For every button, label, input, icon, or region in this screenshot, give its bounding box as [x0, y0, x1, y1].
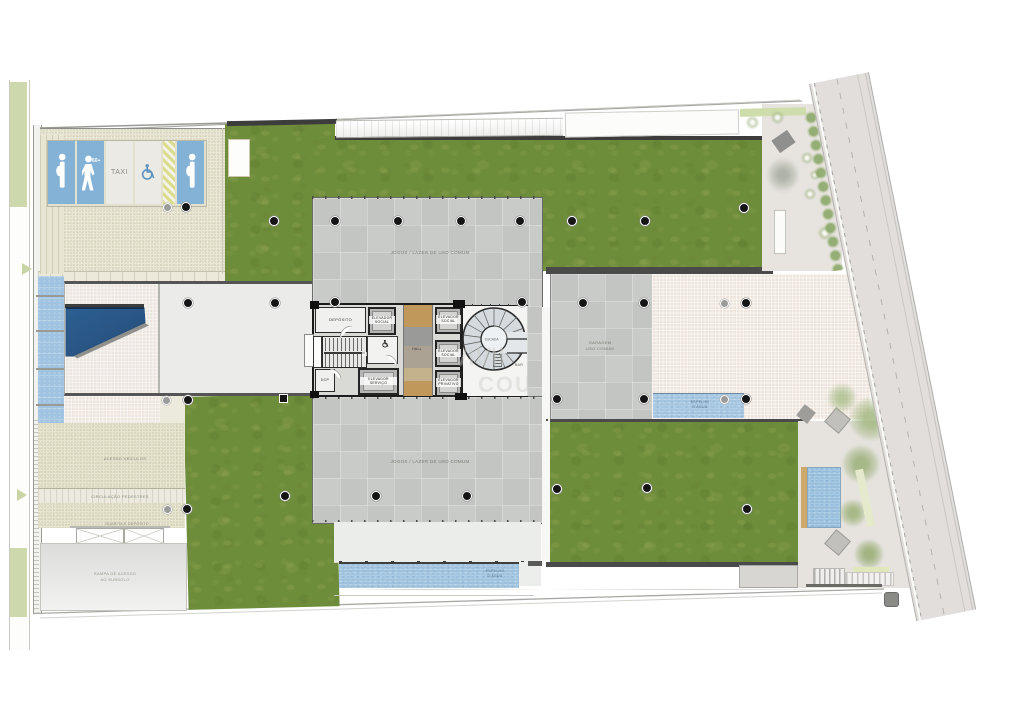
- svg-text:ESCADA: ESCADA: [485, 338, 499, 342]
